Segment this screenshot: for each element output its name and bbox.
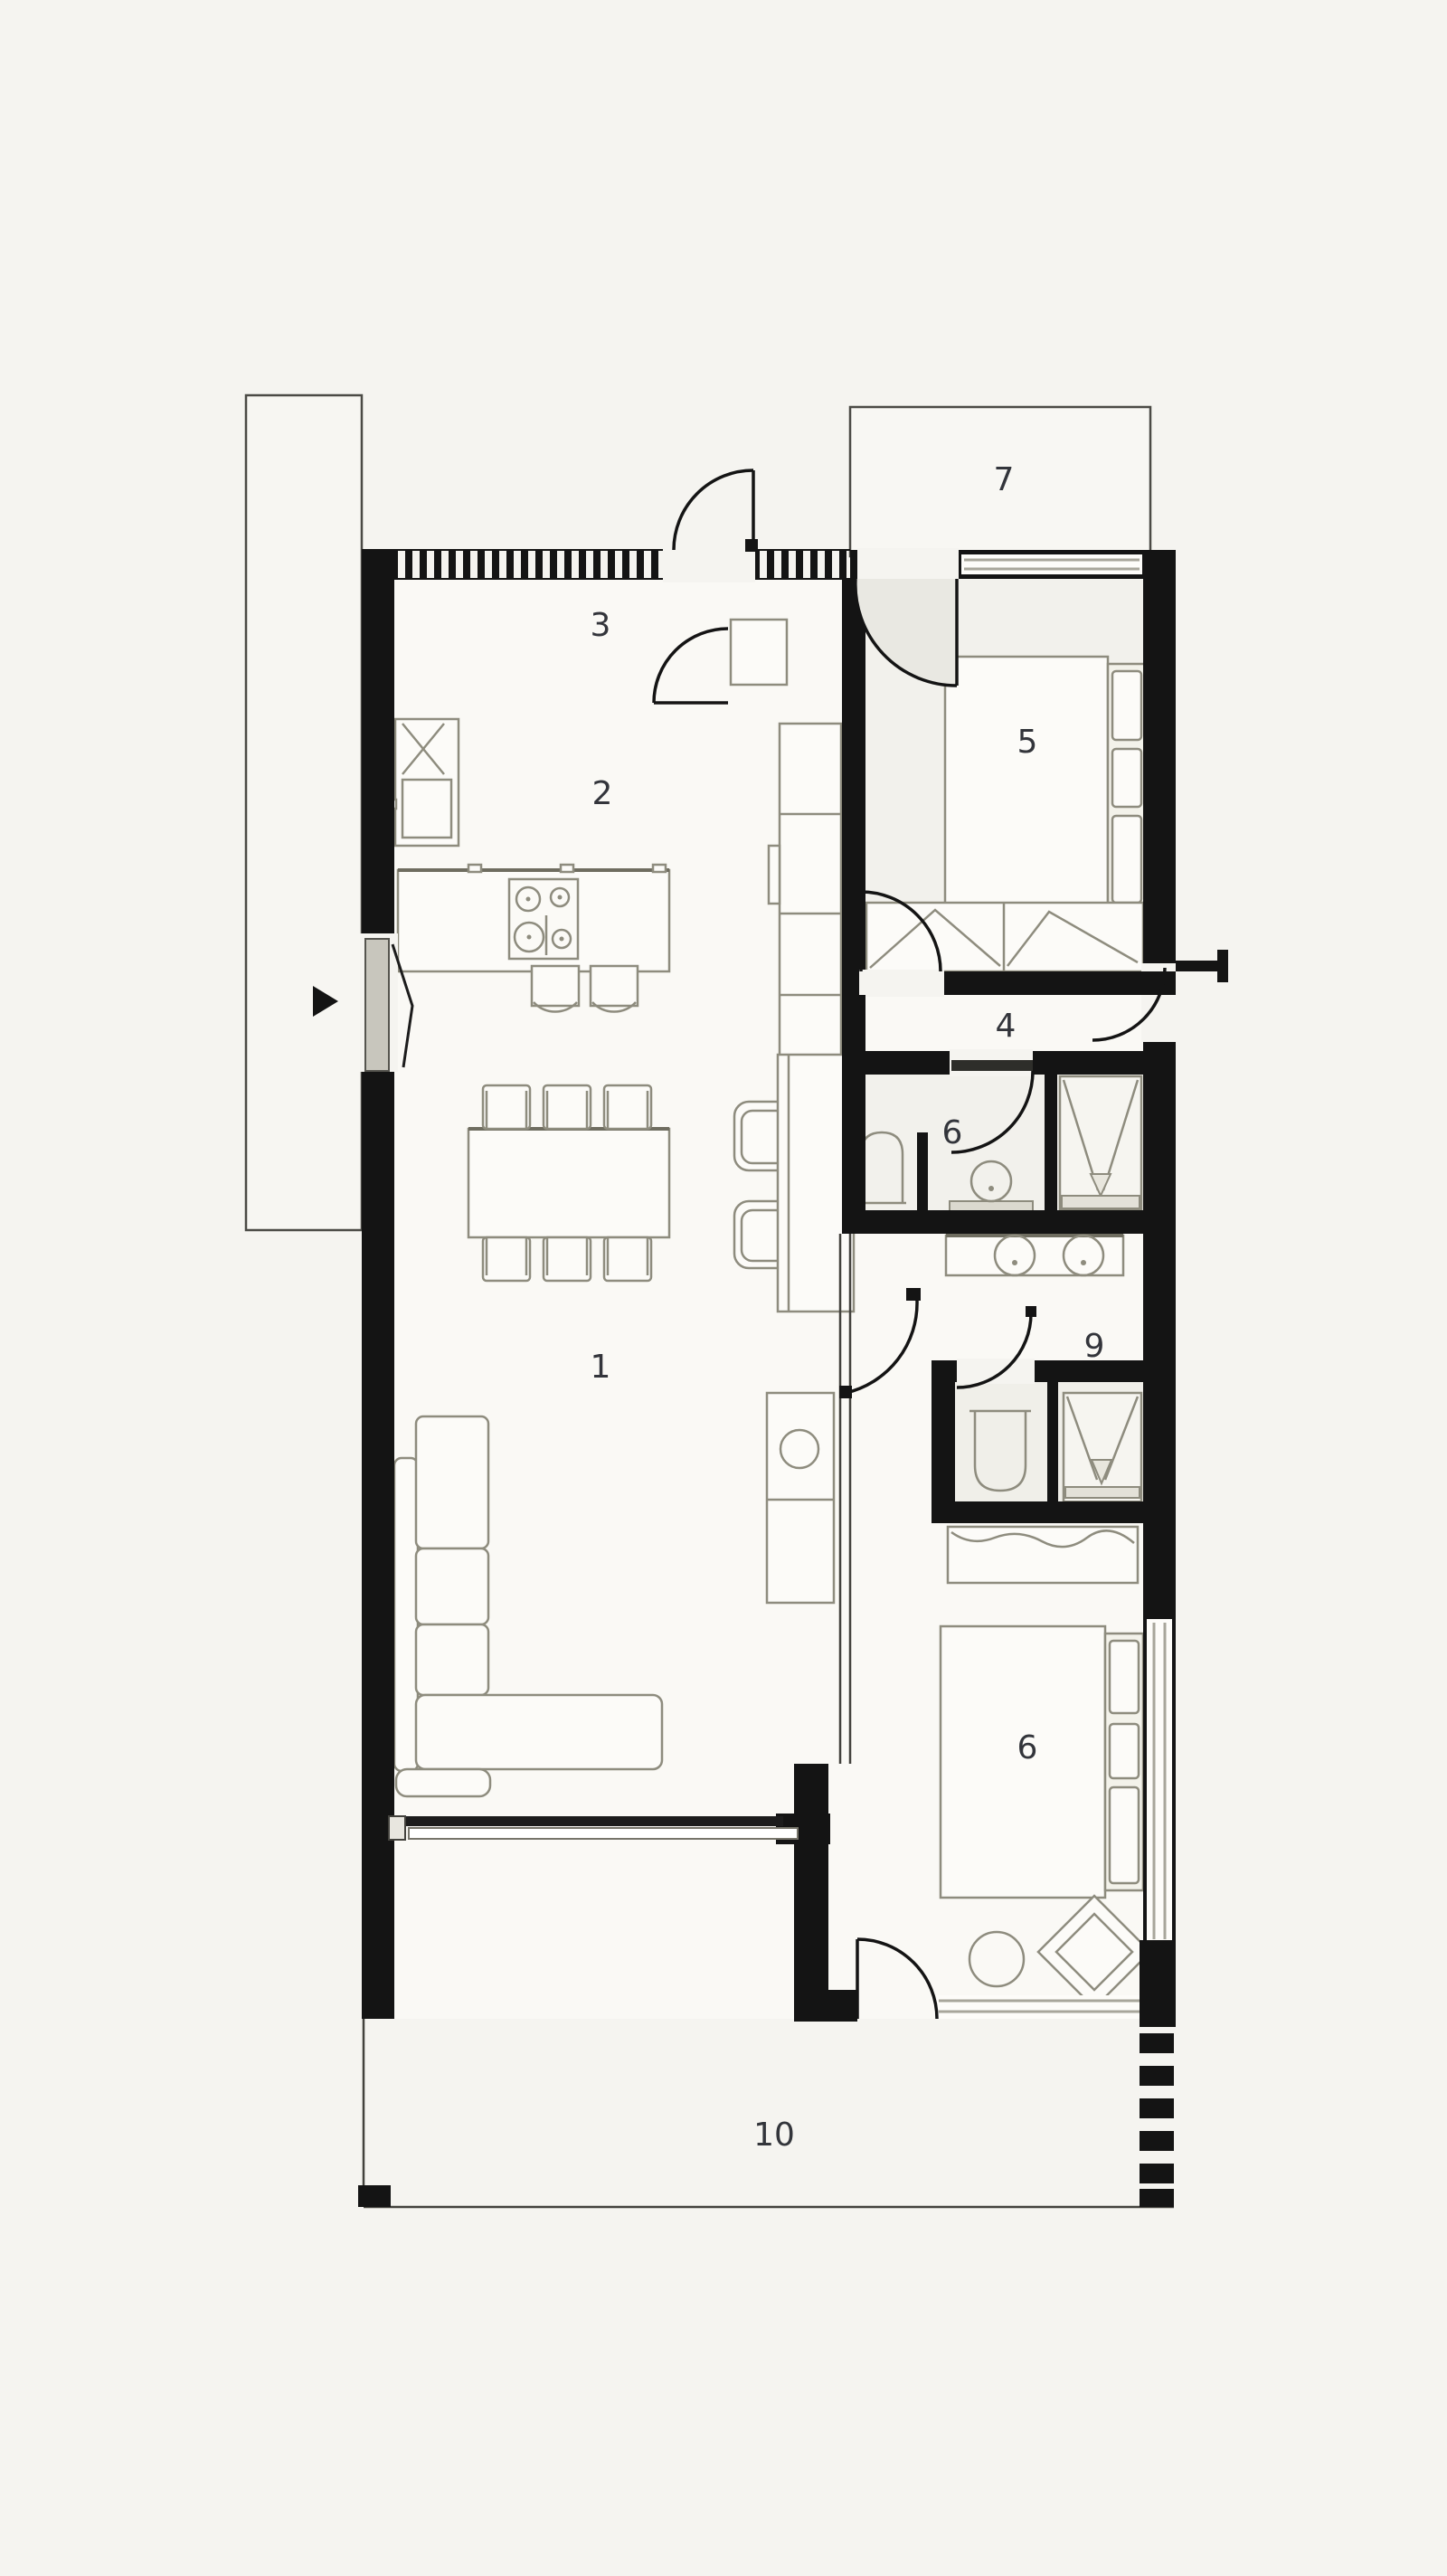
bathroom-partition	[917, 1132, 928, 1210]
room-label-bathroom: 6	[942, 1114, 963, 1151]
bedroom-second-south-wall	[794, 1990, 857, 2022]
dining-chairs-top	[483, 1085, 651, 1129]
tall-cabinet-column	[769, 724, 841, 1076]
wardrobe	[866, 903, 1143, 971]
bed-double	[945, 657, 1146, 915]
room-label-bedroom-second: 6	[1017, 1729, 1038, 1766]
bar-stool	[532, 966, 579, 1012]
bar-stool	[591, 966, 638, 1012]
ensuite-west-wall	[932, 1382, 955, 1518]
room-label-terrace-upper: 7	[994, 461, 1015, 498]
media-cabinet	[767, 1393, 834, 1603]
bedroom-second-south-window	[935, 1995, 1143, 2019]
room-label-terrace-lower: 10	[753, 2117, 795, 2154]
dining-table	[468, 1129, 669, 1237]
terrace-post-left	[358, 2185, 391, 2207]
entry-cabinet	[731, 620, 787, 685]
corner-post	[1140, 1940, 1176, 2027]
ensuite-partition	[1047, 1382, 1058, 1501]
shower-icon	[1064, 1393, 1141, 1511]
cooktop-icon	[509, 879, 578, 959]
bathroom-west-wall	[842, 1075, 865, 1210]
bedroom-second-west-wall	[794, 1764, 828, 2022]
room-label-hallway: 4	[996, 1008, 1017, 1045]
room-label-bedroom-main: 5	[1017, 724, 1038, 761]
floor-plan-drawing: 1 2 3 4 5 6 7 9 6 10	[0, 0, 1447, 2576]
shower-partition	[1045, 1075, 1057, 1210]
double-vanity	[946, 1236, 1123, 1275]
floor-plan-page: 1 2 3 4 5 6 7 9 6 10	[0, 0, 1447, 2576]
left-wall	[362, 550, 394, 2019]
room-label-entry-hall: 3	[591, 607, 611, 644]
room-label-ensuite: 9	[1084, 1328, 1105, 1365]
ensuite-south-wall	[932, 1501, 1176, 1523]
bathroom-south-wall	[842, 1210, 1176, 1234]
bed-double	[941, 1626, 1143, 1898]
bedroom-second-window	[1147, 1619, 1172, 1943]
dining-chairs-bottom	[483, 1237, 651, 1281]
living-sliding-door	[389, 1816, 798, 1840]
top-exterior-door	[674, 470, 758, 552]
terrace-dashed-edge	[1140, 2033, 1174, 2207]
shower-icon	[1060, 1076, 1141, 1210]
hall-west-wall	[842, 995, 865, 1051]
room-label-living-dining: 1	[591, 1349, 611, 1386]
driveway-outline	[246, 395, 362, 1230]
hatched-top-wall	[362, 546, 850, 582]
bedroom-main-window	[961, 554, 1142, 574]
dresser	[948, 1527, 1138, 1583]
terrace-door-opening	[857, 548, 959, 581]
room-label-kitchen: 2	[592, 775, 613, 812]
